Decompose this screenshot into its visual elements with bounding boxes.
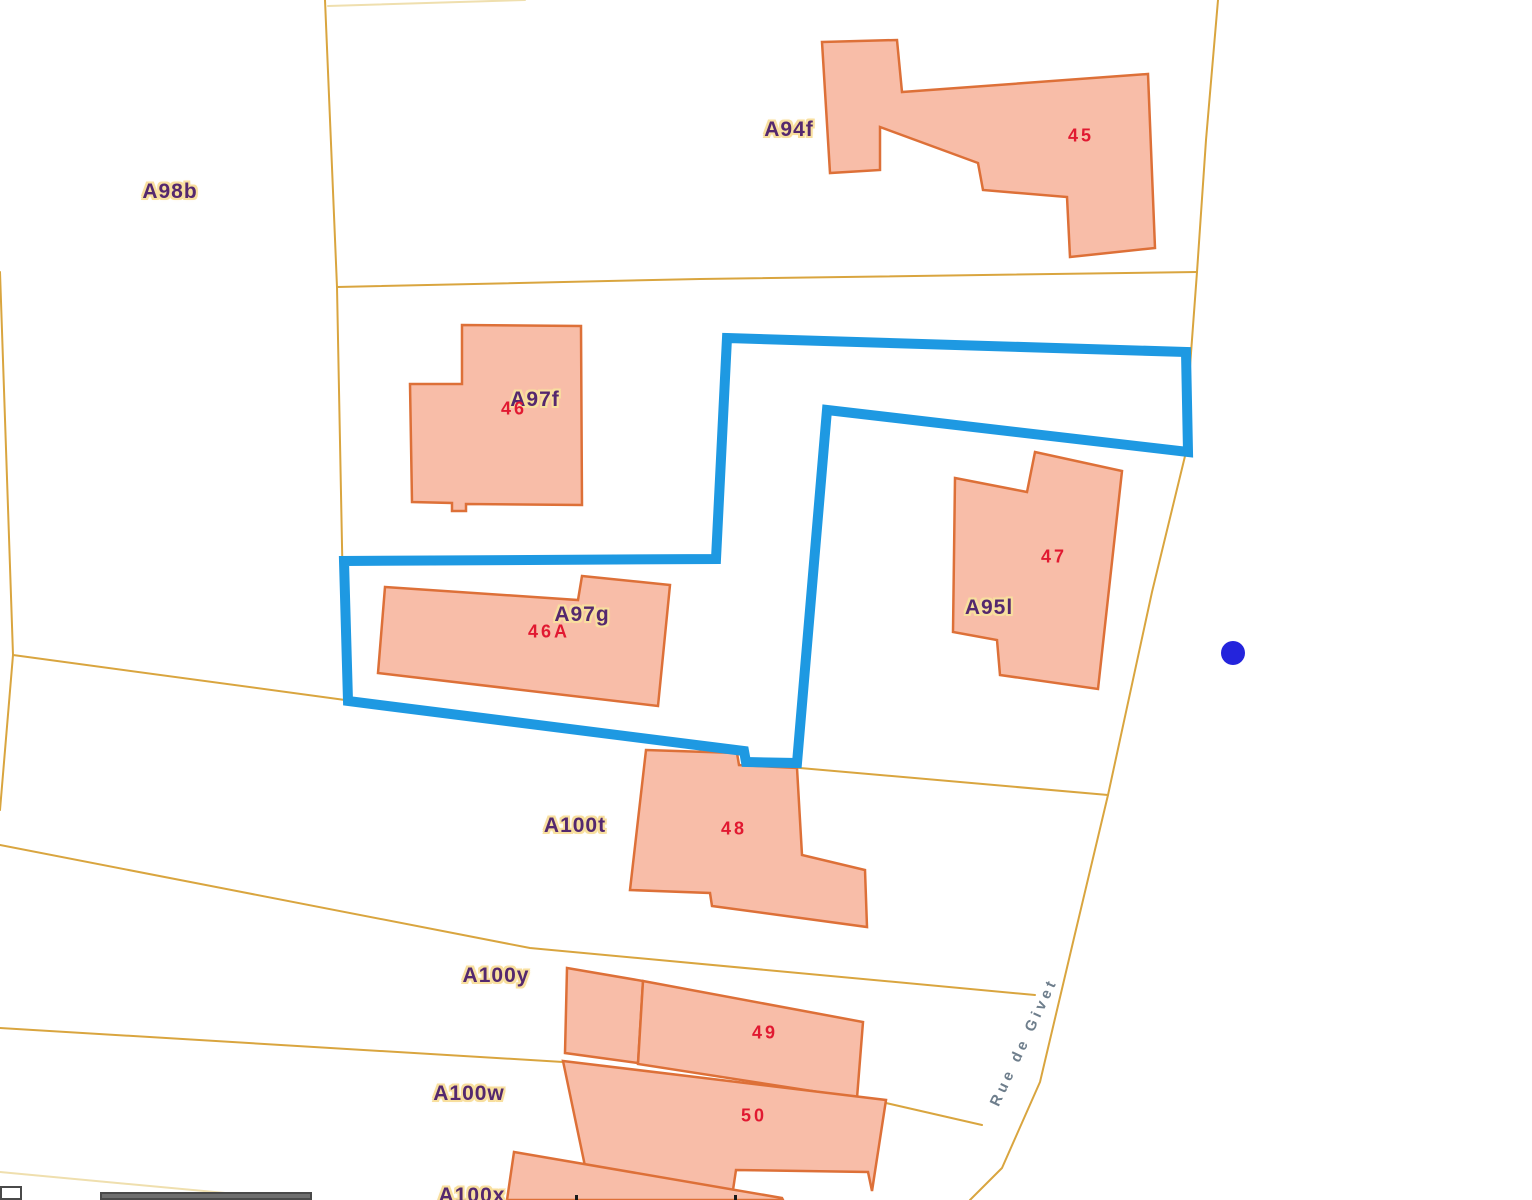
parcel-label-A100t: A100t bbox=[544, 814, 606, 838]
parcel-label-A95l: A95l bbox=[965, 596, 1013, 620]
parcel-label-A94f: A94f bbox=[764, 118, 814, 142]
building-46 bbox=[410, 325, 582, 511]
parcel-label-A100w: A100w bbox=[433, 1082, 505, 1106]
building-47 bbox=[953, 452, 1122, 689]
scalebar-tick-0 bbox=[575, 1195, 578, 1200]
scalebar-segment bbox=[100, 1192, 312, 1200]
building-45 bbox=[822, 40, 1155, 257]
map-canvas bbox=[0, 0, 1532, 1200]
cadastral-map-viewport[interactable]: Rue de Givet A98bA94fA97fA97gA95lA100tA1… bbox=[0, 0, 1532, 1200]
building-number-48: 48 bbox=[721, 819, 747, 840]
building-number-49: 49 bbox=[752, 1023, 778, 1044]
building-49-left bbox=[565, 968, 643, 1063]
building-46A bbox=[378, 576, 670, 706]
building-number-46A: 46A bbox=[528, 622, 570, 643]
parcel-label-A100x: A100x bbox=[439, 1184, 506, 1200]
parcel-label-A98b: A98b bbox=[142, 180, 197, 204]
building-number-45: 45 bbox=[1068, 126, 1094, 147]
building-number-47: 47 bbox=[1041, 547, 1067, 568]
building-48 bbox=[630, 750, 867, 927]
building-number-46: 46 bbox=[501, 399, 527, 420]
map-marker-dot[interactable] bbox=[1221, 641, 1245, 665]
scalebar-end-box bbox=[0, 1186, 22, 1200]
parcel-line-top-edge-line bbox=[328, 0, 525, 6]
scalebar-tick-1 bbox=[734, 1195, 737, 1200]
parcel-line-a94f-south-boundary bbox=[337, 272, 1197, 287]
parcel-label-A100y: A100y bbox=[463, 964, 530, 988]
parcel-line-west-boundary bbox=[0, 272, 13, 810]
building-number-50: 50 bbox=[741, 1106, 767, 1127]
parcel-line-north-vertical-boundary bbox=[325, 0, 337, 287]
